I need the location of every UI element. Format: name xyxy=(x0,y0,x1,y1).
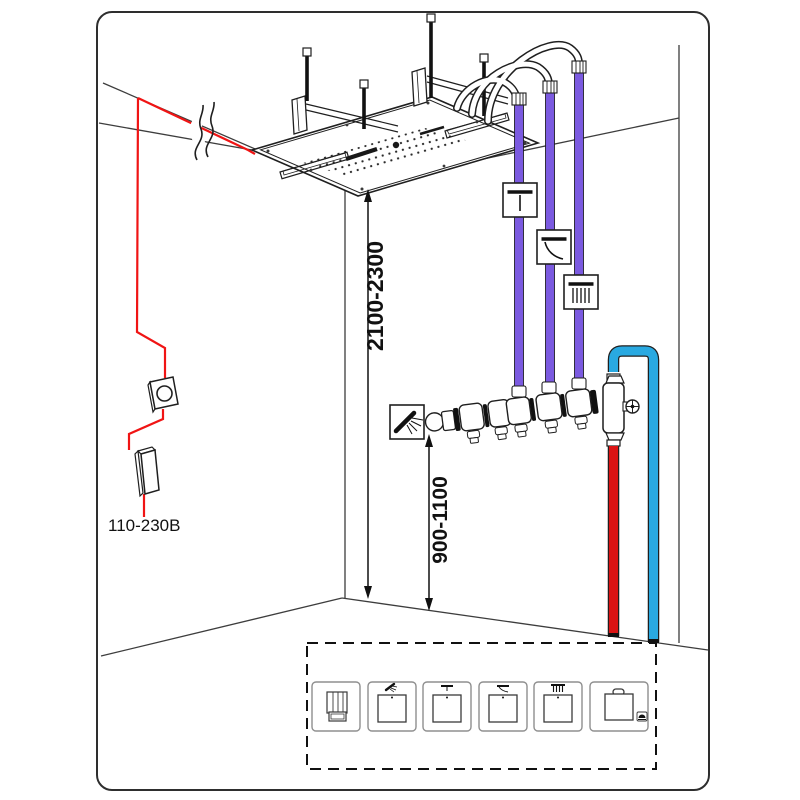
supply-pipe-purple-3 xyxy=(575,72,584,380)
hot-water-pipe xyxy=(608,446,619,637)
stream-icon xyxy=(537,230,571,264)
light-icon xyxy=(637,712,647,721)
dimension-label-valve: 900-1100 xyxy=(429,476,452,564)
waterfall-icon xyxy=(503,183,537,217)
hand-shower-icon xyxy=(390,405,424,439)
rain-icon xyxy=(564,275,598,309)
legend-module-light xyxy=(590,682,648,731)
legend-module-rain xyxy=(534,682,582,731)
power-supply-box xyxy=(135,447,159,496)
legend-module-hand-shower xyxy=(368,682,416,731)
installation-diagram: 110-230В xyxy=(0,0,800,800)
legend-module-control-knob xyxy=(312,682,360,731)
power-label: 110-230В xyxy=(108,516,180,535)
center-nozzle xyxy=(393,142,399,148)
legend-module-stream xyxy=(479,682,527,731)
supply-pipe-purple-1 xyxy=(515,104,524,388)
dimension-label-ceiling: 2100-2300 xyxy=(362,241,388,351)
legend-module-waterfall xyxy=(423,682,471,731)
